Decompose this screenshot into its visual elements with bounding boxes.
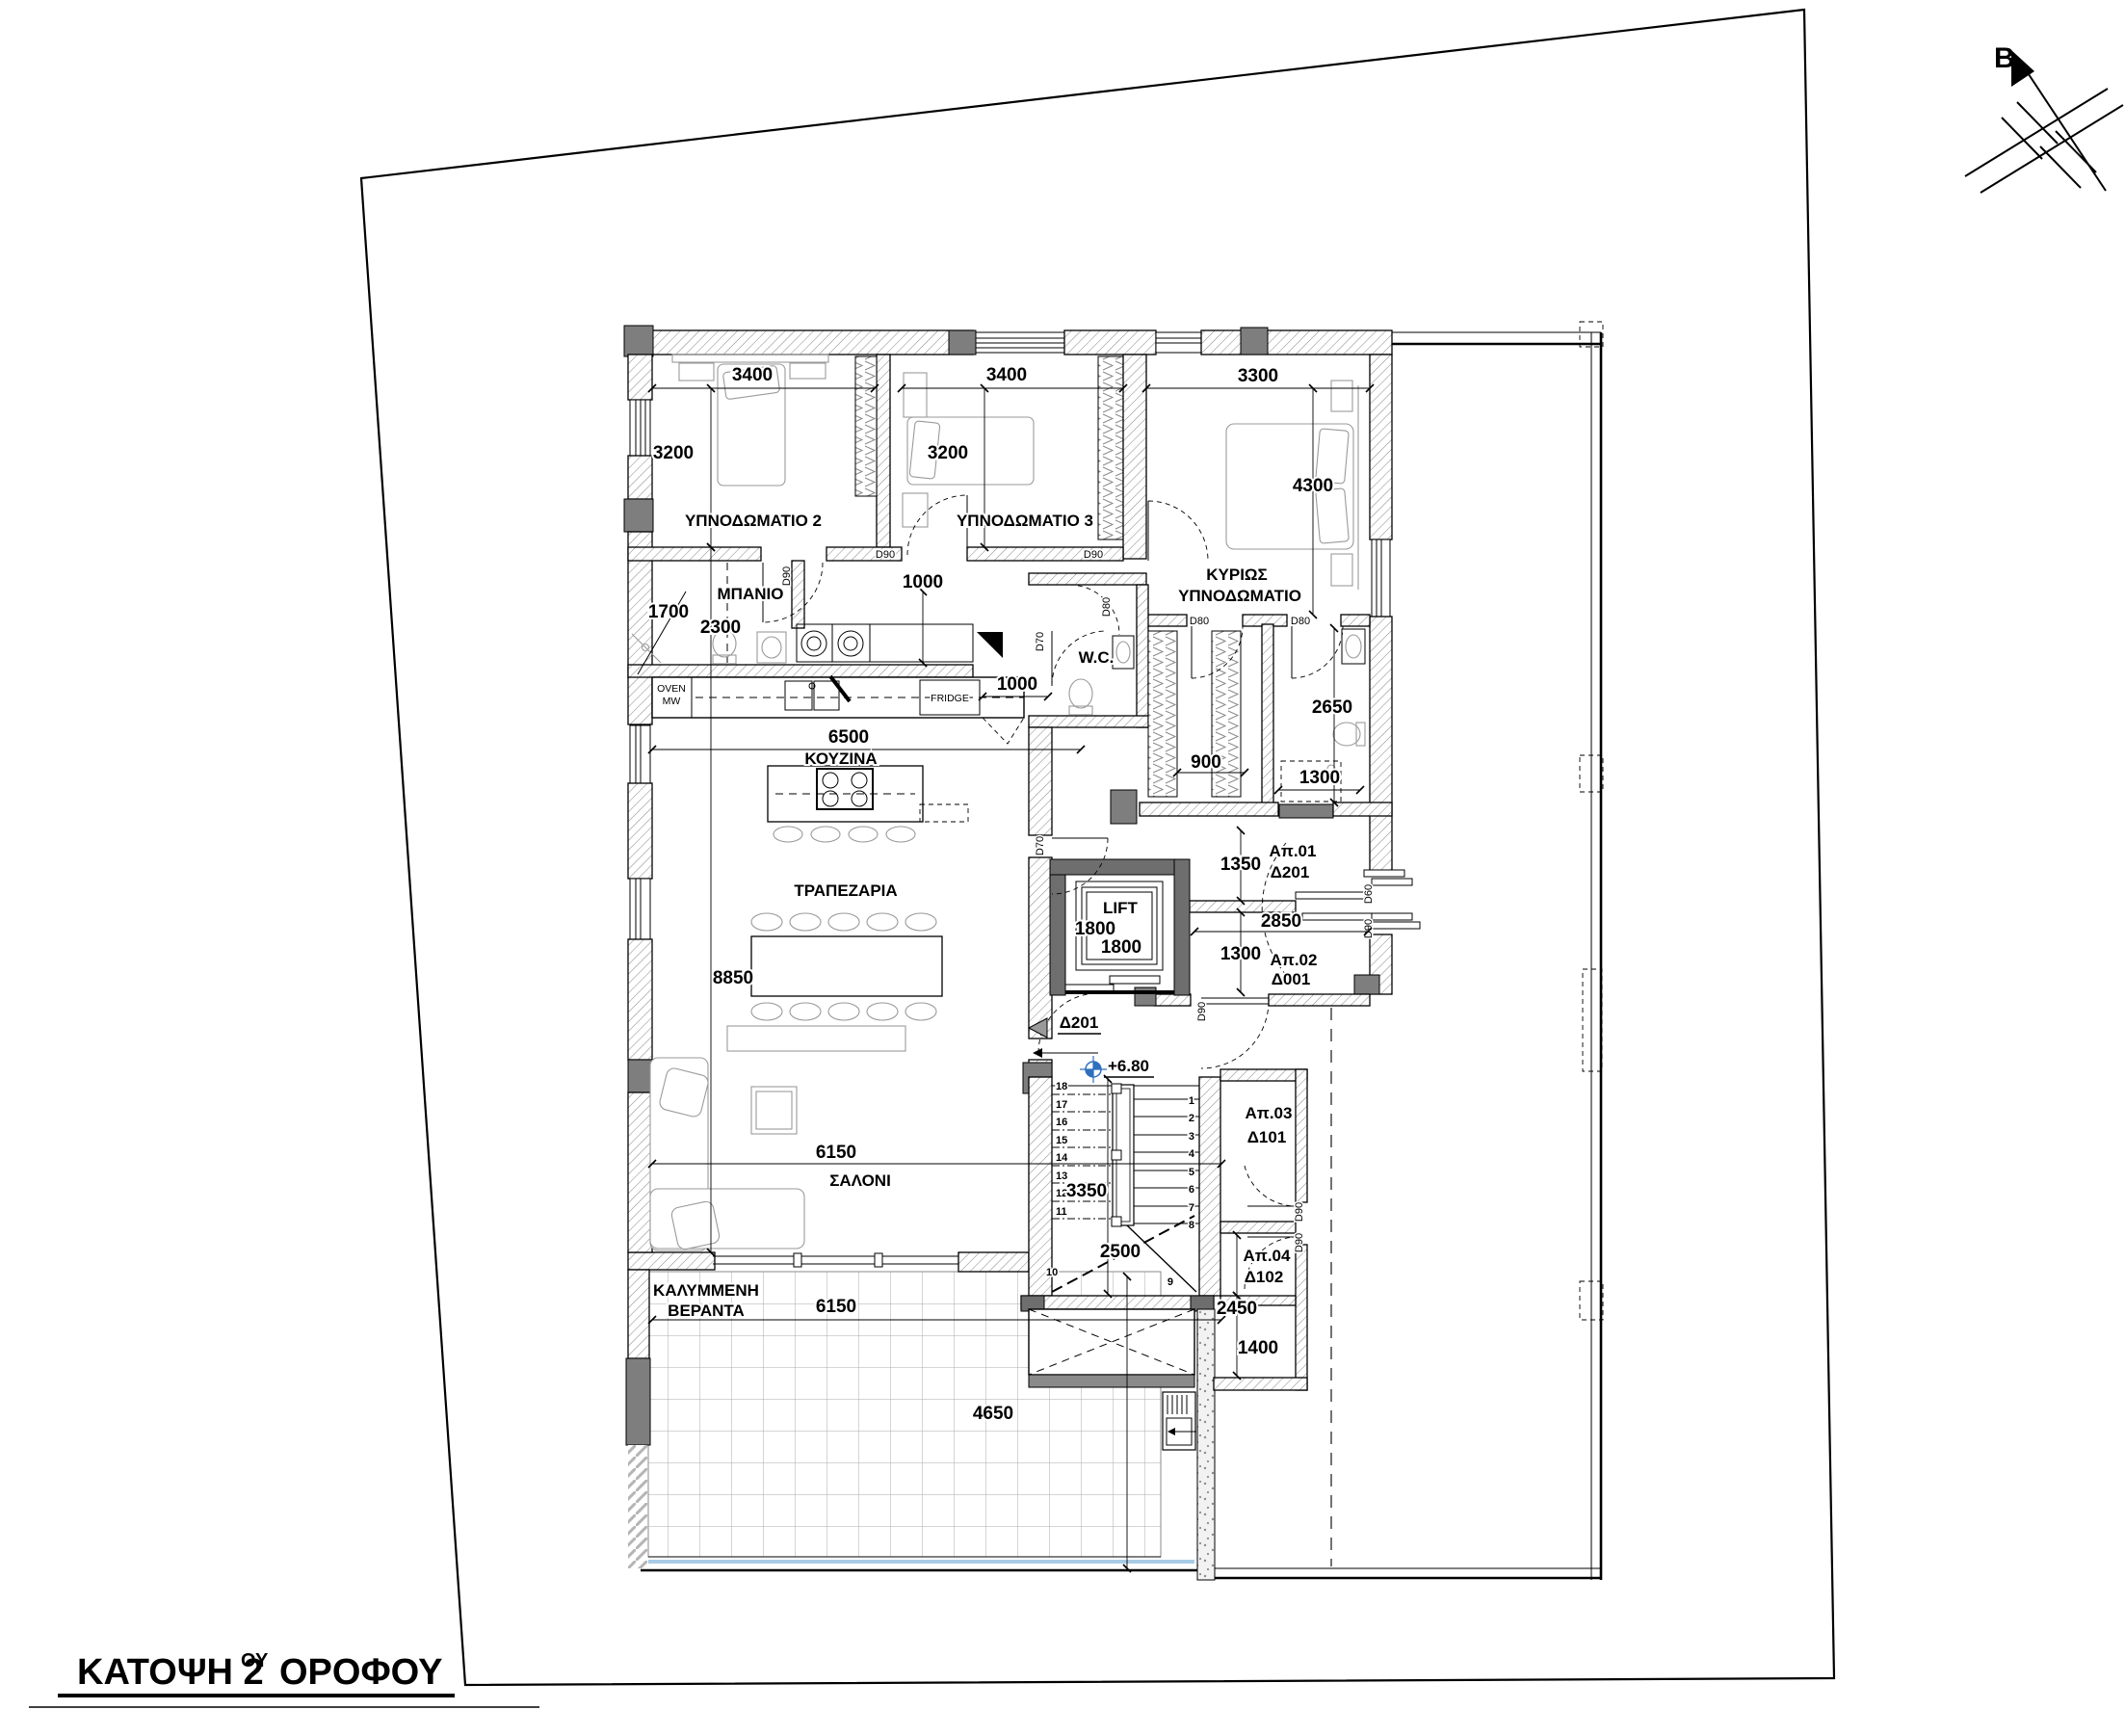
svg-text:D90: D90 [1294, 1233, 1305, 1252]
window [1372, 539, 1390, 617]
svg-text:2500: 2500 [1100, 1242, 1141, 1262]
svg-text:2: 2 [1189, 1113, 1194, 1124]
stool [774, 827, 802, 842]
svg-text:2450: 2450 [1217, 1299, 1257, 1319]
desk [904, 373, 927, 417]
svg-text:2650: 2650 [1312, 697, 1352, 718]
column [1135, 987, 1156, 1006]
svg-text:900: 900 [1191, 752, 1221, 773]
label-kitchen: ΚΟΥΖΙΝΑ [804, 750, 877, 768]
svg-text:D90: D90 [781, 566, 793, 586]
armchair [670, 1200, 721, 1250]
svg-text:3400: 3400 [986, 365, 1027, 385]
svg-text:D90: D90 [876, 549, 895, 561]
svg-text:D70: D70 [1035, 836, 1046, 855]
column [1111, 790, 1137, 824]
svg-text:5: 5 [1189, 1167, 1194, 1178]
svg-text:2850: 2850 [1261, 911, 1301, 932]
window [630, 725, 650, 783]
column [624, 326, 653, 356]
sliding-door [1296, 892, 1372, 920]
oven-label-2: MW [663, 696, 681, 707]
window [976, 332, 1064, 353]
apt-01-name: Απ.01 [1270, 842, 1317, 860]
svg-text:6150: 6150 [816, 1143, 856, 1163]
kitchen-island [768, 766, 968, 842]
svg-text:1300: 1300 [1220, 944, 1261, 964]
console [727, 1026, 905, 1051]
level-symbol-icon [1080, 1056, 1107, 1083]
entrance-label: Δ201 [1060, 1013, 1099, 1032]
nightstand [1331, 554, 1352, 586]
svg-text:1350: 1350 [1220, 855, 1261, 875]
floor-plan-page: B [0, 0, 2125, 1736]
coffee-table [751, 1087, 797, 1134]
apt-02-name: Απ.02 [1271, 951, 1318, 969]
label-dining: ΤΡΑΠΕΖΑΡΙΑ [794, 881, 897, 900]
svg-text:15: 15 [1056, 1135, 1067, 1146]
svg-text:1400: 1400 [1238, 1338, 1278, 1358]
apt-01-code: Δ201 [1271, 863, 1310, 881]
svg-text:3350: 3350 [1066, 1181, 1107, 1201]
svg-text:D90: D90 [1363, 919, 1375, 938]
wardrobe [855, 356, 877, 496]
label-veranda-1: ΚΑΛΥΜΜΕΝΗ [653, 1281, 759, 1300]
sink-icon [757, 632, 786, 663]
stool [849, 827, 878, 842]
svg-text:17: 17 [1056, 1099, 1067, 1111]
svg-text:D80: D80 [1190, 616, 1209, 627]
wardrobe [1098, 356, 1123, 539]
svg-text:3200: 3200 [928, 443, 968, 463]
apt-03-name: Απ.03 [1246, 1104, 1293, 1122]
north-arrow: B [1965, 42, 2123, 193]
svg-text:8850: 8850 [713, 968, 753, 988]
svg-text:D60: D60 [1363, 884, 1375, 904]
apt-03-code: Δ101 [1247, 1128, 1287, 1146]
nightstand [679, 363, 714, 381]
sliding-window [713, 1253, 958, 1267]
svg-text:6500: 6500 [828, 727, 869, 748]
desk [903, 493, 928, 527]
svg-text:3400: 3400 [732, 365, 773, 385]
nightstand [1331, 381, 1352, 411]
svg-text:3200: 3200 [653, 443, 694, 463]
nightstand [790, 363, 826, 379]
kitchen-corner-unit [977, 632, 1003, 658]
column [624, 499, 653, 532]
toilet-icon [1069, 679, 1092, 715]
lift-label: LIFT [1103, 899, 1138, 917]
stool [886, 827, 915, 842]
stool [811, 827, 840, 842]
dim-lift-w: 1800 [1075, 919, 1115, 939]
window [1156, 332, 1201, 353]
oven-label-1: OVEN [657, 683, 686, 695]
dining-table [751, 936, 942, 996]
svg-text:D90: D90 [1196, 1002, 1208, 1021]
svg-text:2300: 2300 [700, 618, 741, 638]
svg-text:11: 11 [1056, 1206, 1067, 1218]
sink-icon [1342, 629, 1365, 664]
svg-text:D90: D90 [1084, 549, 1103, 561]
level-value: +6.80 [1108, 1057, 1149, 1075]
apt-04-name: Απ.04 [1244, 1247, 1291, 1265]
living-furniture [650, 1026, 905, 1250]
window [630, 400, 650, 456]
drawing-title-sup: ΟΥ [241, 1650, 269, 1671]
svg-text:10: 10 [1046, 1267, 1058, 1278]
svg-text:1300: 1300 [1299, 768, 1340, 788]
sink-icon [1113, 636, 1134, 669]
north-arrowhead-icon [2011, 50, 2034, 87]
label-master-2: ΥΠΝΟΔΩΜΑΤΙΟ [1178, 587, 1301, 605]
svg-text:18: 18 [1056, 1081, 1067, 1092]
apt-04-code: Δ102 [1245, 1268, 1284, 1286]
window [630, 879, 650, 939]
svg-text:D80: D80 [1101, 597, 1113, 617]
level-marker: +6.80 [1080, 1056, 1154, 1083]
column [1279, 804, 1333, 818]
svg-text:4300: 4300 [1293, 476, 1333, 496]
svg-text:7: 7 [1189, 1202, 1194, 1214]
svg-text:1000: 1000 [903, 572, 943, 592]
floor-plan-svg: B [0, 0, 2125, 1736]
label-bedroom3: ΥΠΝΟΔΩΜΑΤΙΟ 3 [957, 512, 1093, 530]
veranda-column [626, 1358, 650, 1445]
label-veranda-2: ΒΕΡΑΝΤΑ [668, 1302, 745, 1320]
dim-lift-d: 1800 [1101, 937, 1141, 958]
toilet-icon [1333, 723, 1365, 746]
svg-text:4: 4 [1189, 1148, 1195, 1160]
svg-text:1: 1 [1189, 1095, 1194, 1107]
column [949, 330, 976, 355]
svg-text:1700: 1700 [648, 602, 689, 622]
label-wc: W.C. [1079, 648, 1115, 667]
dining-furniture [751, 913, 942, 1020]
service-hatch [1163, 1392, 1196, 1450]
svg-text:1000: 1000 [997, 674, 1037, 695]
label-living: ΣΑΛΟΝΙ [829, 1171, 891, 1190]
stair-numbers-right: 1 2 3 4 5 6 7 8 9 [1167, 1095, 1195, 1288]
stair-void [1029, 1309, 1194, 1387]
svg-text:3: 3 [1189, 1131, 1194, 1143]
bed [1226, 424, 1353, 549]
svg-text:D90: D90 [1294, 1202, 1305, 1222]
svg-text:6: 6 [1189, 1184, 1194, 1196]
column [1354, 975, 1379, 994]
label-bedroom2: ΥΠΝΟΔΩΜΑΤΙΟ 2 [685, 512, 822, 530]
bed [907, 417, 1034, 485]
svg-text:8: 8 [1189, 1220, 1194, 1231]
apt-02-code: Δ001 [1272, 970, 1311, 988]
svg-text:14: 14 [1056, 1152, 1068, 1164]
svg-text:3300: 3300 [1238, 366, 1278, 386]
drawing-title-prefix: ΚΑΤΟΨΗ 2 [77, 1652, 264, 1693]
svg-text:16: 16 [1056, 1117, 1067, 1128]
label-bathroom: ΜΠΑΝΙΟ [718, 585, 784, 603]
column [1241, 328, 1268, 355]
lift-shaft: LIFT 1800 1800 [1050, 859, 1190, 995]
laundry-machines [797, 624, 973, 662]
svg-text:D70: D70 [1035, 632, 1046, 651]
concrete-pillar [1197, 1309, 1215, 1580]
svg-text:9: 9 [1167, 1276, 1173, 1288]
veranda-open-rail [628, 1445, 647, 1568]
drawing-title-suffix: ΟΡΟΦΟΥ [279, 1652, 443, 1693]
label-master-1: ΚΥΡΙΩΣ [1206, 566, 1268, 584]
svg-text:4650: 4650 [973, 1404, 1013, 1424]
fridge-label: FRIDGE [931, 693, 969, 704]
svg-text:D80: D80 [1291, 616, 1310, 627]
wardrobe [1148, 631, 1177, 797]
svg-text:6150: 6150 [816, 1297, 856, 1317]
